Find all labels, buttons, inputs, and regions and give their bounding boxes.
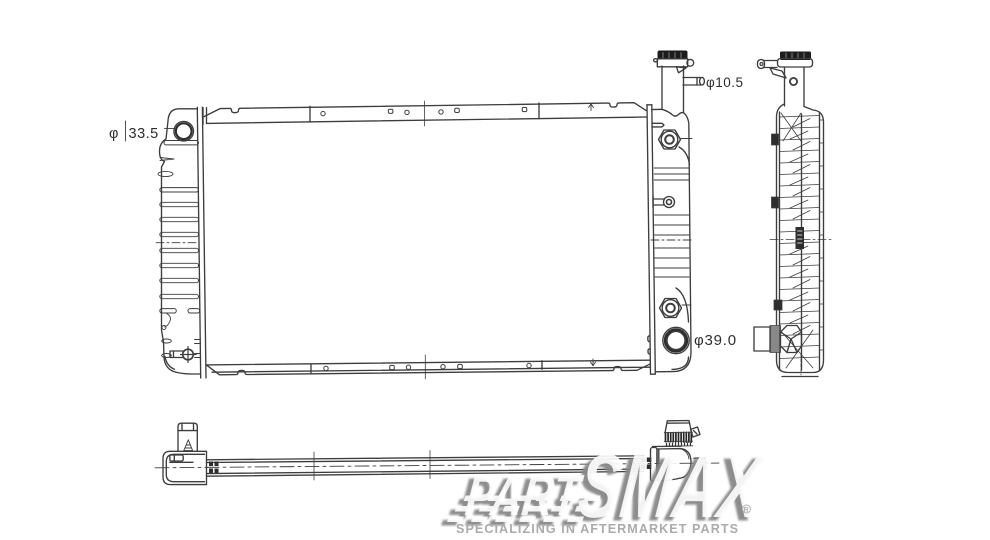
svg-text:φ10.5: φ10.5 — [706, 75, 744, 90]
svg-text:φ39.0: φ39.0 — [694, 332, 737, 349]
svg-text:33.5: 33.5 — [129, 126, 159, 142]
svg-text:R: R — [744, 507, 749, 514]
svg-text:SPECIALIZING IN AFTERMARKET PA: SPECIALIZING IN AFTERMARKET PARTS — [456, 522, 739, 536]
svg-text:φ: φ — [109, 126, 118, 142]
